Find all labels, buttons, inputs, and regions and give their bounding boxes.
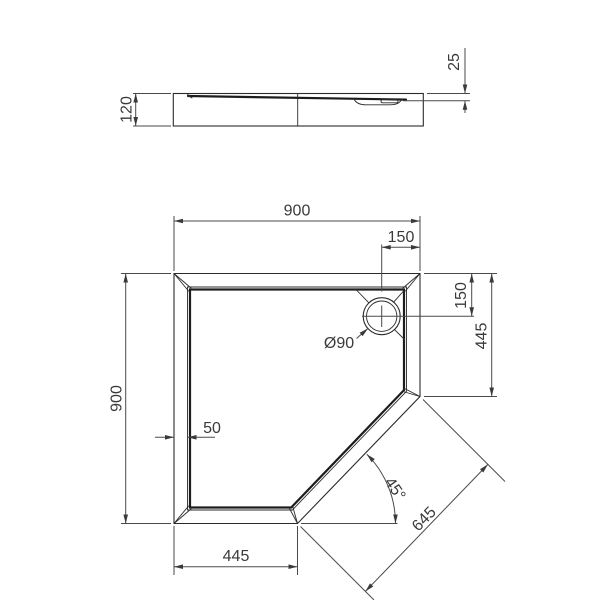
dim-rim-to-ledge: 25: [403, 48, 470, 113]
dim-bottom-edge-445: 445: [174, 526, 298, 575]
ext-line: [423, 400, 505, 482]
drawing-canvas: 120 25: [0, 0, 600, 600]
dim-label-depth: 900: [109, 385, 126, 412]
drain-platform-line: [356, 290, 369, 303]
ext-line: [301, 527, 375, 600]
dim-label-side-height: 120: [119, 96, 136, 123]
dim-drain-offset-right-150: 150: [362, 274, 497, 317]
side-view-floor-line: [188, 96, 406, 100]
dim-label-right-edge: 445: [474, 323, 491, 350]
shower-tray-technical-drawing: 120 25: [0, 0, 600, 600]
dim-label-drain-offset-top: 150: [388, 229, 415, 246]
dim-label-bottom-edge: 445: [223, 548, 250, 565]
dim-depth-900: 900: [109, 274, 172, 524]
dim-drain-offset-top-150: 150: [382, 229, 420, 292]
side-view: [173, 94, 423, 127]
dim-label-cut-length: 645: [409, 504, 440, 535]
drain-platform-line: [394, 290, 405, 302]
dim-label-drain-diameter: Ø90: [324, 335, 354, 352]
tray-floor-edge: [190, 290, 404, 508]
leader-line: [357, 329, 368, 339]
dim-label-rim-to-ledge: 25: [446, 53, 463, 71]
dim-label-width: 900: [284, 203, 311, 220]
dim-rim-width-50: 50: [155, 420, 221, 437]
dim-side-height: 120: [119, 94, 172, 127]
dim-drain-diameter: Ø90: [324, 329, 368, 353]
dim-label-drain-offset-right: 150: [453, 282, 470, 309]
tray-rim-inner-edge: [188, 287, 407, 510]
dim-cut-length-645: 645: [301, 400, 506, 600]
dim-label-rim-width: 50: [203, 420, 221, 437]
dim-width-900: 900: [174, 203, 420, 272]
